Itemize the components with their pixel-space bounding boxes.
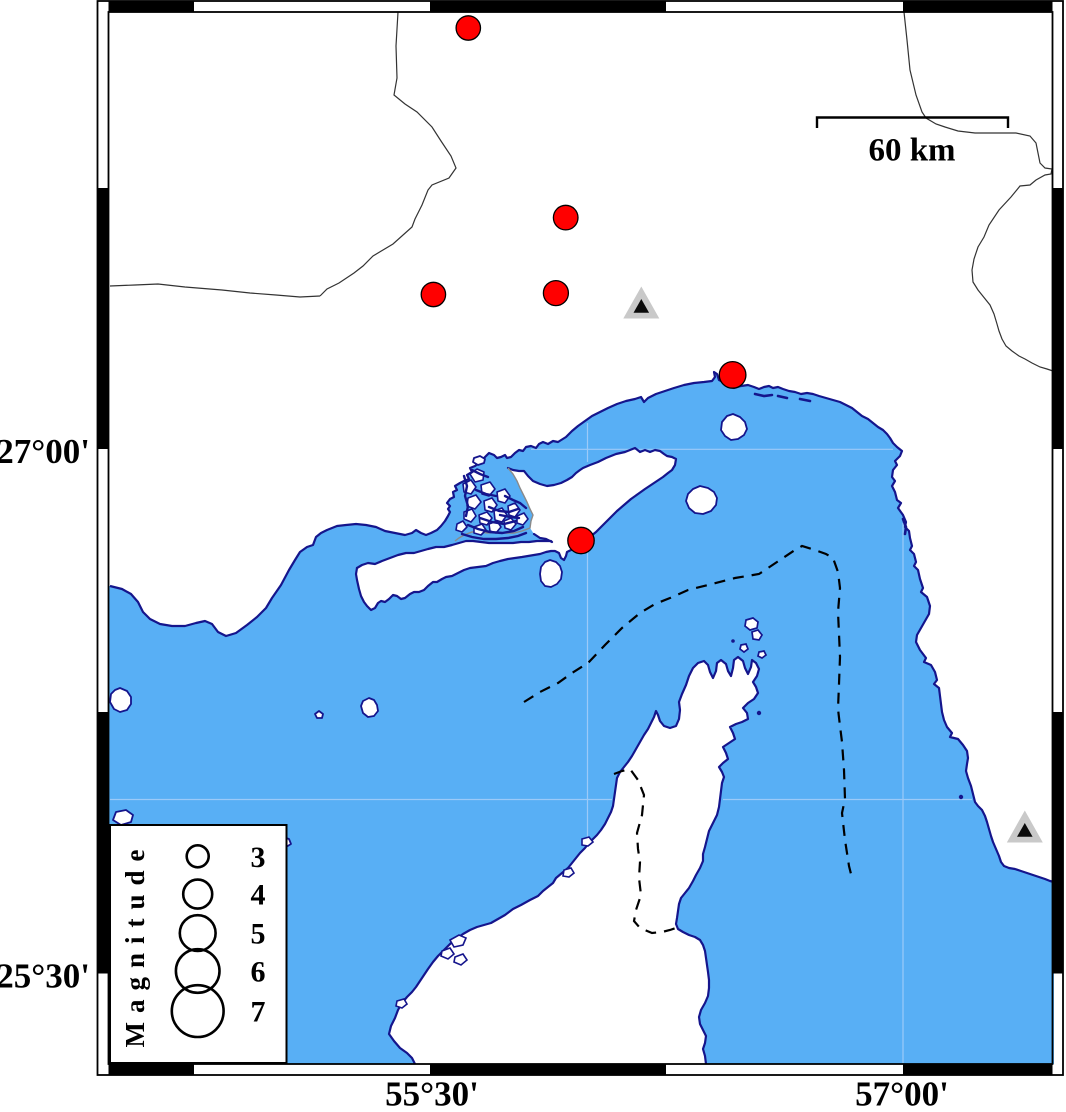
svg-text:60 km: 60 km bbox=[868, 133, 955, 169]
svg-text:4: 4 bbox=[251, 879, 266, 912]
svg-text:55°30': 55°30' bbox=[385, 1075, 479, 1112]
svg-text:57°00': 57°00' bbox=[855, 1075, 949, 1112]
svg-text:Magnitude: Magnitude bbox=[120, 840, 150, 1047]
svg-text:27°00': 27°00' bbox=[0, 432, 90, 471]
svg-text:6: 6 bbox=[251, 956, 266, 989]
svg-text:7: 7 bbox=[251, 996, 266, 1029]
svg-text:3: 3 bbox=[251, 841, 266, 874]
svg-text:5: 5 bbox=[251, 918, 266, 951]
svg-text:25°30': 25°30' bbox=[0, 957, 90, 996]
